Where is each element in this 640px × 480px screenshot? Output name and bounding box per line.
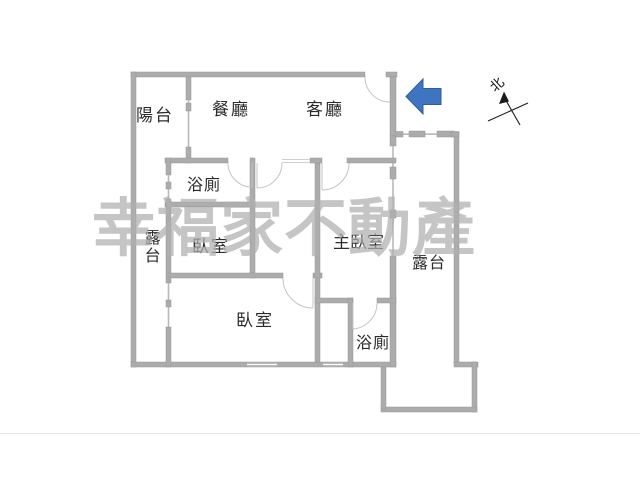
- room-label-bedroom-lower: 臥室: [236, 312, 274, 331]
- north-label: 北: [487, 74, 507, 95]
- room-label-bathroom-bottom: 浴廁: [356, 335, 390, 353]
- room-label-bathroom-top: 浴廁: [187, 177, 221, 195]
- room-label-living: 客廳: [306, 101, 344, 120]
- watermark-text: 幸福家不動產: [92, 198, 476, 261]
- room-label-balcony: 陽台: [136, 107, 174, 126]
- north-compass-icon: 北: [487, 74, 528, 125]
- entrance-arrow-icon: [406, 79, 441, 114]
- floorplan-canvas: 北 陽台 餐廳 客廳 浴廁 露台 臥室 主臥室 露台 臥室 浴廁 幸福家不動產: [0, 0, 640, 480]
- image-bottom-divider: [0, 433, 640, 434]
- room-label-dining: 餐廳: [212, 101, 250, 120]
